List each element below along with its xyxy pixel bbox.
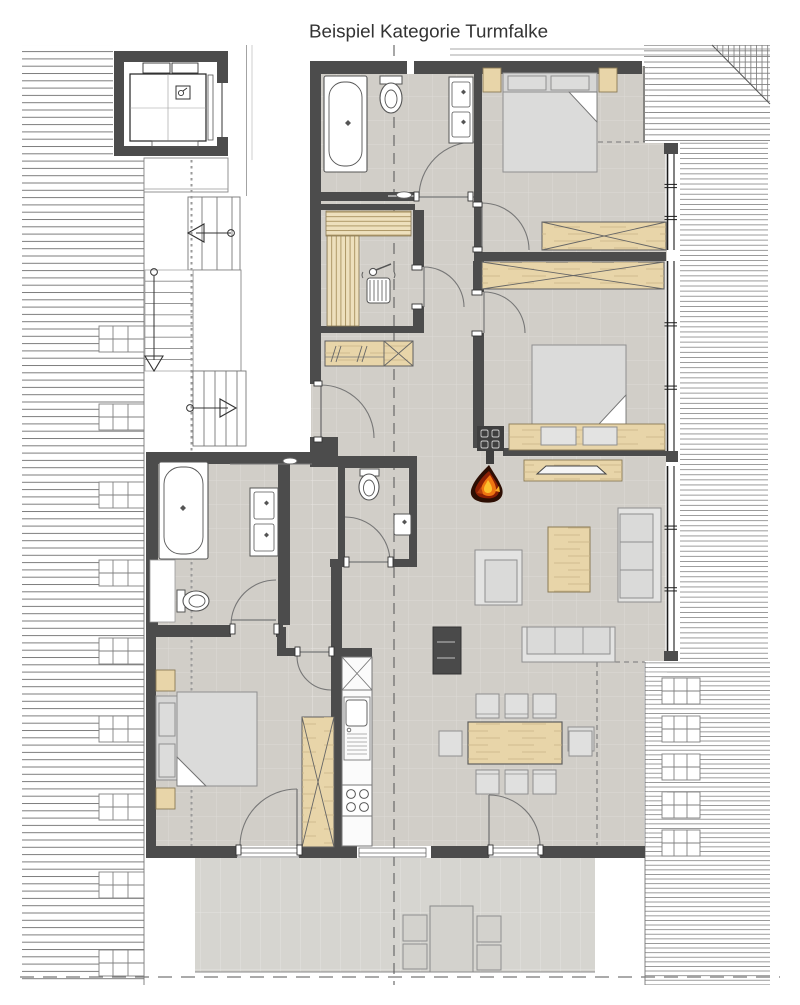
svg-text:Beispiel Kategorie Turmfalke: Beispiel Kategorie Turmfalke — [309, 21, 548, 42]
